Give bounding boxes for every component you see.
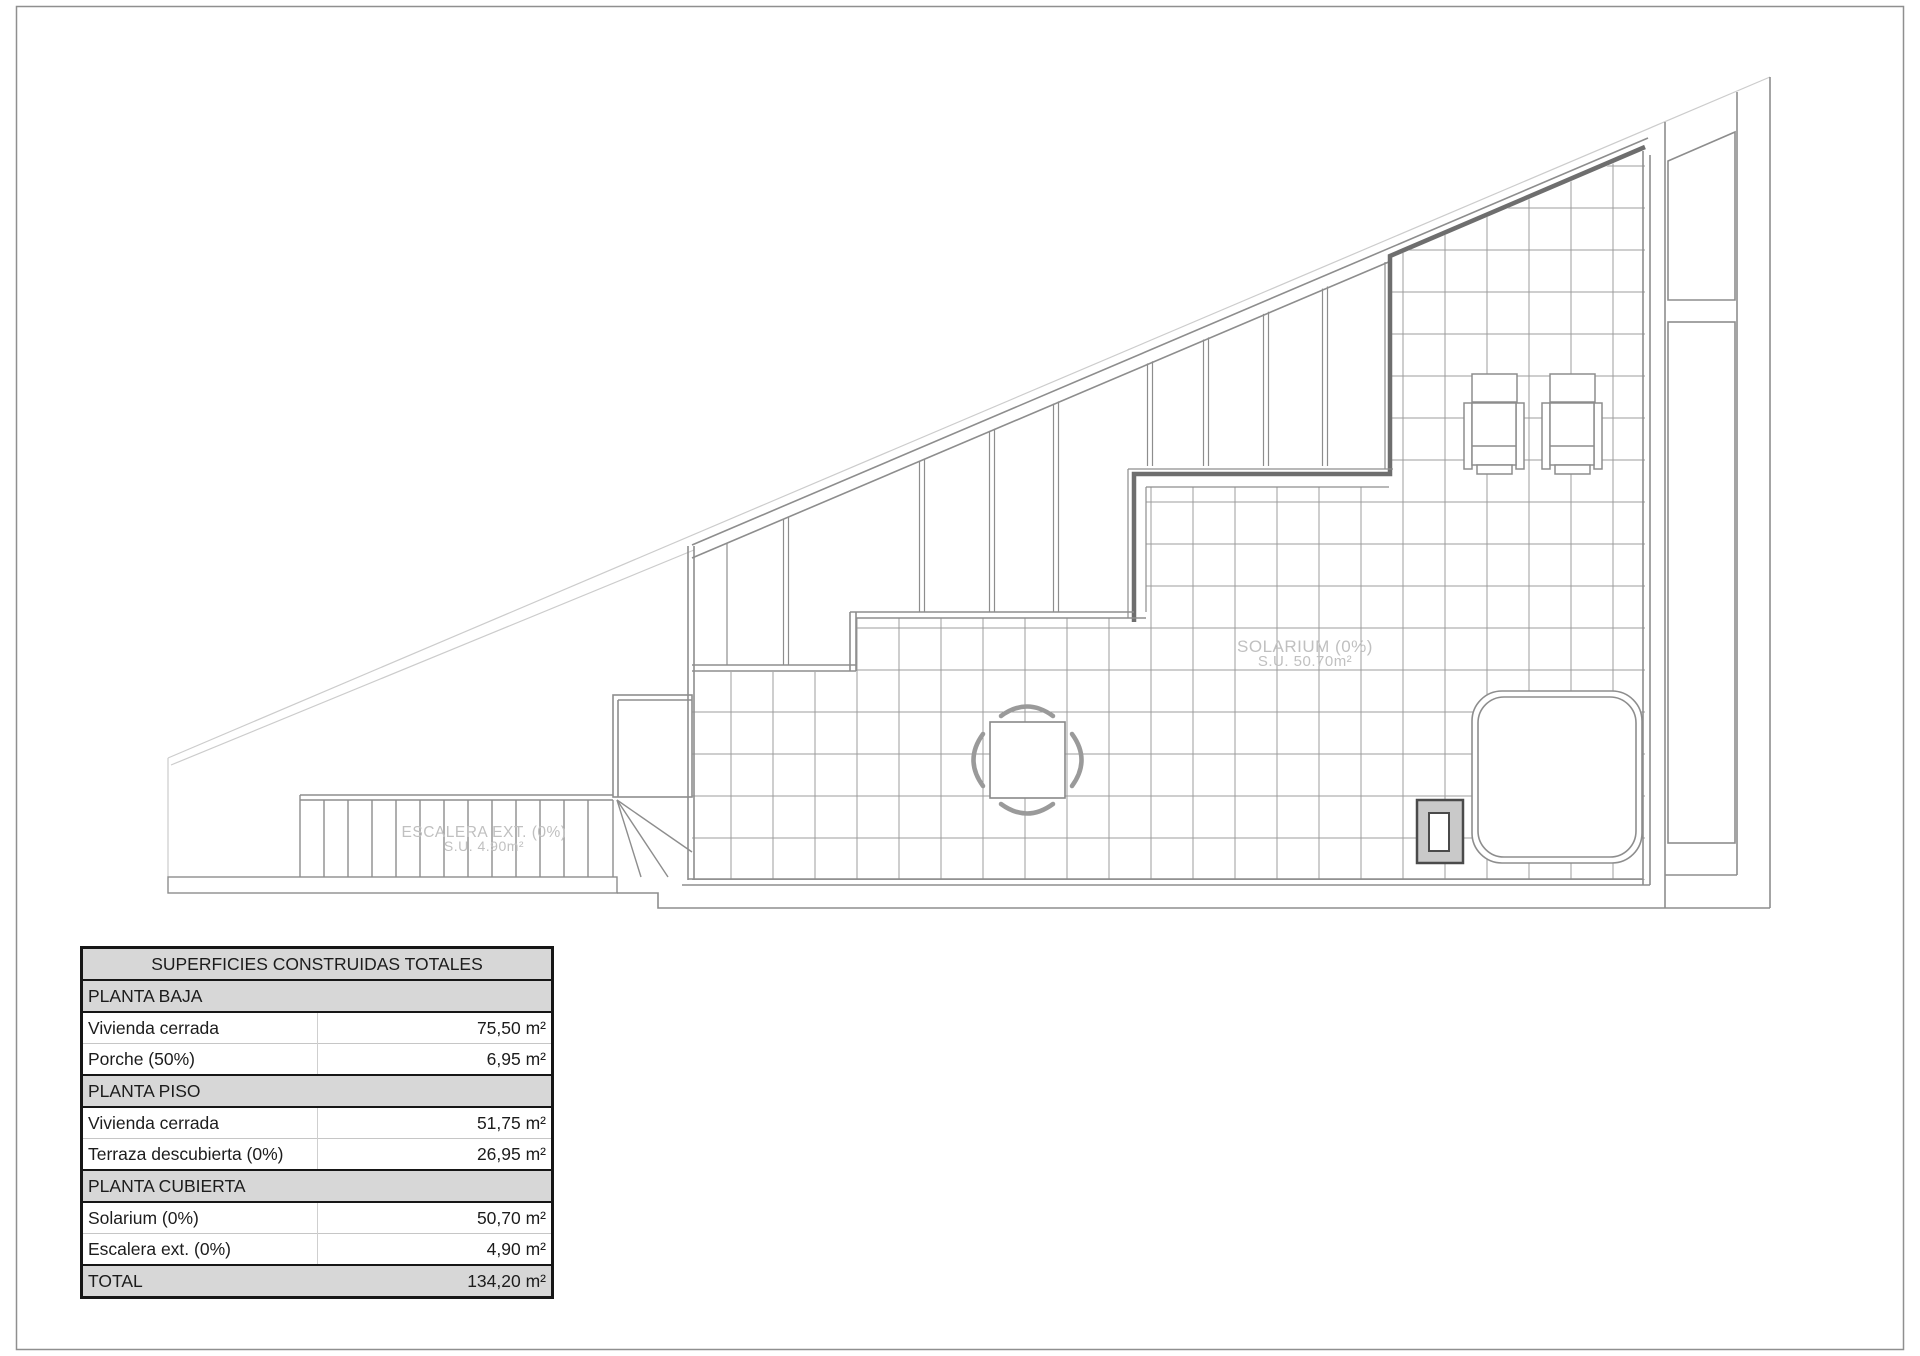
solarium-area-sublabel: S.U. 50.70m² [1258, 653, 1352, 670]
lower-edge-strip [168, 877, 617, 893]
table-row: Vivienda cerrada 75,50 m² [82, 1012, 553, 1044]
sun-lounger [1542, 374, 1602, 474]
sun-lounger [1464, 374, 1524, 474]
table-row: Terraza descubierta (0%) 26,95 m² [82, 1139, 553, 1171]
winder-steps [617, 800, 692, 877]
roof-edge-band [692, 138, 1648, 558]
stair-landing [613, 695, 692, 797]
table-row-planta-piso: PLANTA PISO [82, 1075, 553, 1107]
table-row-total: TOTAL 134,20 m² [82, 1265, 553, 1298]
table-row-planta-baja: PLANTA BAJA [82, 980, 553, 1012]
table-row: Escalera ext. (0%) 4,90 m² [82, 1234, 553, 1266]
table-row: Solarium (0%) 50,70 m² [82, 1202, 553, 1234]
dining-set [974, 707, 1082, 814]
areas-table-title-row: SUPERFICIES CONSTRUIDAS TOTALES [82, 948, 553, 981]
table-row-planta-cubierta: PLANTA CUBIERTA [82, 1170, 553, 1202]
areas-table: SUPERFICIES CONSTRUIDAS TOTALES PLANTA B… [80, 946, 554, 1299]
dining-table [990, 722, 1065, 798]
sun-loungers [1464, 374, 1602, 474]
chimney-vent [1417, 800, 1463, 863]
areas-table-title: SUPERFICIES CONSTRUIDAS TOTALES [82, 948, 553, 981]
stairs-area-sublabel: S.U. 4.90m² [444, 838, 524, 854]
exterior-stairs [168, 795, 692, 893]
table-row: Porche (50%) 6,95 m² [82, 1044, 553, 1076]
table-row: Vivienda cerrada 51,75 m² [82, 1107, 553, 1139]
jacuzzi [1472, 691, 1642, 863]
drawing-page: SOLARIUM (0%) S.U. 50.70m² ESCALERA EXT.… [0, 0, 1920, 1356]
